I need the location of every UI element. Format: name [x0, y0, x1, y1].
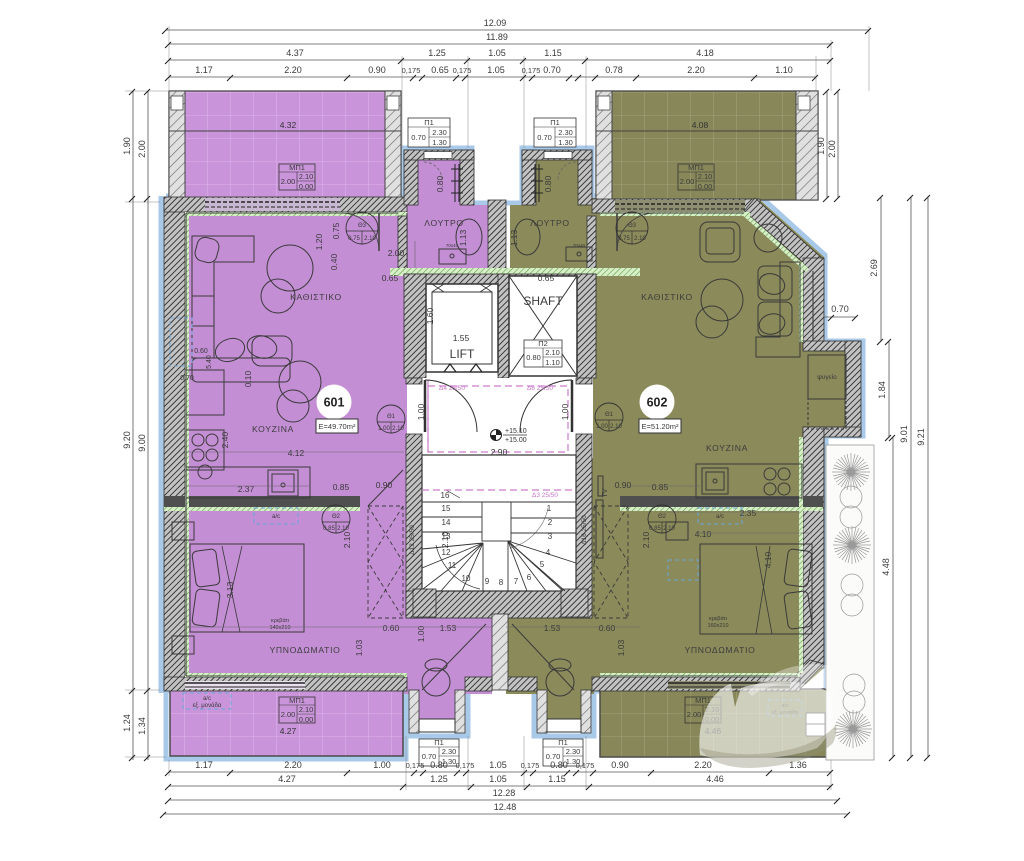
svg-text:Π1: Π1	[558, 738, 568, 747]
svg-text:0.78: 0.78	[605, 65, 623, 75]
svg-text:2.20: 2.20	[687, 65, 705, 75]
svg-text:1.20: 1.20	[314, 233, 324, 250]
svg-text:a/c: a/c	[716, 514, 724, 520]
svg-text:Θ1: Θ1	[605, 412, 614, 418]
svg-text:a/c: a/c	[272, 514, 280, 520]
svg-text:Θ2: Θ2	[658, 514, 667, 520]
svg-text:4.08: 4.08	[692, 120, 709, 130]
svg-text:1.84: 1.84	[877, 381, 887, 399]
svg-text:2.10: 2.10	[641, 531, 651, 548]
svg-text:Δ6 25/50: Δ6 25/50	[527, 385, 553, 392]
svg-text:4.37: 4.37	[286, 48, 304, 58]
svg-text:1.05: 1.05	[489, 760, 507, 770]
svg-text:2.35: 2.35	[740, 508, 757, 518]
svg-text:0.60: 0.60	[383, 623, 400, 633]
svg-text:κρεβάτι: κρεβάτι	[271, 617, 290, 624]
svg-text:601: 601	[324, 396, 345, 410]
svg-text:12.28: 12.28	[493, 788, 516, 798]
svg-text:4.10: 4.10	[695, 529, 712, 539]
svg-text:Θ3: Θ3	[628, 223, 637, 229]
svg-text:Θ3: Θ3	[358, 223, 367, 229]
svg-text:0.60: 0.60	[194, 348, 208, 355]
svg-text:14: 14	[442, 518, 451, 527]
svg-text:12.48: 12.48	[494, 802, 517, 812]
svg-text:2.10: 2.10	[364, 236, 376, 242]
svg-text:ΚΑΘΙΣΤΙΚΟ: ΚΑΘΙΣΤΙΚΟ	[641, 292, 693, 302]
svg-text:9.00: 9.00	[137, 434, 147, 452]
svg-text:0.85: 0.85	[333, 482, 350, 492]
svg-text:ΚΟΥΖΙΝΑ: ΚΟΥΖΙΝΑ	[252, 424, 294, 434]
svg-text:2.20: 2.20	[694, 760, 712, 770]
svg-text:2.90: 2.90	[491, 447, 508, 457]
svg-text:9: 9	[485, 577, 490, 586]
svg-text:3.13: 3.13	[225, 581, 235, 598]
svg-text:8: 8	[499, 578, 504, 587]
svg-text:Θ2: Θ2	[332, 514, 341, 520]
svg-text:4.27: 4.27	[278, 774, 296, 784]
svg-text:1.90: 1.90	[816, 137, 826, 155]
svg-text:0.70: 0.70	[831, 304, 849, 314]
svg-text:1.90: 1.90	[122, 137, 132, 155]
svg-text:Δ12 25/50: Δ12 25/50	[409, 525, 416, 555]
svg-text:70x40: 70x40	[573, 243, 586, 248]
svg-text:1.13: 1.13	[509, 229, 519, 246]
svg-text:1: 1	[547, 504, 552, 513]
svg-text:4.27: 4.27	[280, 726, 297, 736]
svg-text:0.65: 0.65	[538, 273, 555, 283]
svg-text:1.15: 1.15	[544, 48, 562, 58]
svg-text:2: 2	[548, 518, 553, 527]
svg-text:0.40: 0.40	[329, 253, 339, 270]
svg-text:ΥΠΝΟΔΩΜΑΤΙΟ: ΥΠΝΟΔΩΜΑΤΙΟ	[269, 645, 340, 655]
svg-text:Θ1: Θ1	[387, 414, 396, 420]
svg-text:0.70: 0.70	[543, 65, 561, 75]
svg-text:ΥΠΝΟΔΩΜΑΤΙΟ: ΥΠΝΟΔΩΜΑΤΙΟ	[684, 645, 755, 655]
svg-text:10: 10	[462, 574, 471, 583]
svg-text:4.46: 4.46	[706, 774, 724, 784]
svg-text:0.10: 0.10	[243, 370, 253, 387]
svg-text:Δ4 25/50: Δ4 25/50	[439, 385, 465, 392]
svg-text:0.80: 0.80	[543, 175, 553, 192]
svg-text:12: 12	[442, 548, 451, 557]
svg-text:Π2: Π2	[538, 339, 548, 348]
svg-text:κρεβάτι: κρεβάτι	[709, 615, 728, 622]
svg-text:2.30: 2.30	[432, 128, 447, 137]
svg-text:1.60: 1.60	[425, 307, 435, 324]
svg-text:1.30: 1.30	[432, 138, 447, 147]
svg-text:2.30: 2.30	[566, 747, 581, 756]
svg-text:0,175: 0,175	[453, 66, 472, 75]
svg-text:7: 7	[514, 577, 519, 586]
svg-text:2.10: 2.10	[545, 348, 560, 357]
svg-text:ΚΑΘΙΣΤΙΚΟ: ΚΑΘΙΣΤΙΚΟ	[290, 292, 342, 302]
svg-text:6: 6	[527, 573, 532, 582]
svg-text:140x210: 140x210	[269, 625, 290, 631]
svg-text:0.90: 0.90	[376, 480, 393, 490]
svg-text:0.80: 0.80	[430, 760, 448, 770]
svg-text:1.30: 1.30	[558, 138, 573, 147]
svg-text:1.15: 1.15	[548, 774, 566, 784]
svg-text:1.00: 1.00	[373, 760, 391, 770]
svg-text:0.70: 0.70	[537, 133, 552, 142]
svg-text:Π1: Π1	[550, 118, 560, 127]
svg-text:0.75: 0.75	[618, 236, 630, 242]
svg-text:9.21: 9.21	[916, 428, 926, 446]
svg-text:0.00: 0.00	[299, 715, 314, 724]
svg-text:0.90: 0.90	[611, 760, 629, 770]
svg-text:4.32: 4.32	[280, 120, 297, 130]
svg-text:0,175: 0,175	[521, 761, 540, 770]
svg-text:1.03: 1.03	[354, 639, 364, 656]
svg-text:1.00: 1.00	[560, 403, 570, 420]
svg-text:2.69: 2.69	[869, 259, 879, 277]
svg-text:ΜΠ1: ΜΠ1	[695, 696, 711, 705]
svg-text:ΜΠ1: ΜΠ1	[289, 696, 305, 705]
svg-text:0,175: 0,175	[576, 761, 595, 770]
svg-text:2.10: 2.10	[299, 705, 314, 714]
svg-text:1.10: 1.10	[545, 358, 560, 367]
svg-text:4.18: 4.18	[696, 48, 714, 58]
svg-text:2.00: 2.00	[827, 140, 837, 158]
svg-text:2.20: 2.20	[284, 760, 302, 770]
svg-text:0,175: 0,175	[402, 66, 421, 75]
svg-text:0.75: 0.75	[348, 236, 360, 242]
svg-text:ΜΠ1: ΜΠ1	[289, 163, 305, 172]
svg-text:2.10: 2.10	[299, 172, 314, 181]
svg-text:1.13: 1.13	[458, 229, 468, 246]
svg-text:2.10: 2.10	[440, 531, 450, 548]
svg-text:ΛΟΥΤΡΟ: ΛΟΥΤΡΟ	[424, 218, 464, 228]
svg-text:+15.00: +15.00	[505, 437, 527, 444]
svg-text:2.00: 2.00	[388, 248, 405, 258]
svg-text:1.53: 1.53	[440, 623, 457, 633]
svg-text:16: 16	[441, 491, 450, 500]
svg-text:1.17: 1.17	[195, 760, 213, 770]
svg-text:4.10: 4.10	[763, 551, 773, 568]
svg-text:2.10: 2.10	[663, 526, 675, 532]
svg-text:12.09: 12.09	[484, 18, 507, 28]
svg-text:2.40: 2.40	[220, 431, 230, 448]
svg-text:Π1: Π1	[434, 738, 444, 747]
svg-text:Δ16 25/50: Δ16 25/50	[581, 515, 588, 545]
svg-text:0.90: 0.90	[615, 480, 632, 490]
svg-text:a/c: a/c	[203, 696, 211, 702]
svg-text:1.03: 1.03	[616, 639, 626, 656]
svg-text:0.00: 0.00	[698, 182, 713, 191]
svg-text:SHAFT: SHAFT	[523, 294, 563, 308]
svg-text:1.10: 1.10	[775, 65, 793, 75]
svg-text:LIFT: LIFT	[450, 347, 475, 361]
svg-text:5.40: 5.40	[206, 355, 213, 369]
svg-text:ΜΠ1: ΜΠ1	[688, 163, 704, 172]
svg-text:70x40: 70x40	[446, 243, 459, 248]
svg-text:1.25: 1.25	[430, 774, 448, 784]
svg-text:0.65: 0.65	[431, 65, 449, 75]
svg-text:2.30: 2.30	[558, 128, 573, 137]
svg-text:602: 602	[647, 396, 668, 410]
svg-text:+15.10: +15.10	[505, 428, 527, 435]
svg-text:1.00: 1.00	[378, 426, 390, 432]
svg-text:1.00: 1.00	[596, 424, 608, 430]
svg-text:2.10: 2.10	[610, 424, 622, 430]
svg-text:1.05: 1.05	[487, 65, 505, 75]
svg-text:1.17: 1.17	[195, 65, 213, 75]
svg-text:4.48: 4.48	[881, 558, 891, 576]
svg-text:3: 3	[548, 532, 553, 541]
svg-text:εξ. μονάδα: εξ. μονάδα	[193, 702, 222, 709]
svg-text:2.10: 2.10	[698, 172, 713, 181]
svg-text:Π1: Π1	[424, 118, 434, 127]
svg-text:0,175: 0,175	[406, 761, 425, 770]
svg-text:0.85: 0.85	[649, 526, 661, 532]
svg-text:9.01: 9.01	[899, 425, 909, 443]
svg-text:1.53: 1.53	[544, 623, 561, 633]
svg-text:1.05: 1.05	[488, 48, 506, 58]
svg-text:1.25: 1.25	[428, 48, 446, 58]
svg-text:15: 15	[442, 504, 451, 513]
svg-text:0.85: 0.85	[323, 526, 335, 532]
svg-text:ΛΟΥΤΡΟ: ΛΟΥΤΡΟ	[530, 218, 570, 228]
svg-text:0.70: 0.70	[180, 375, 194, 382]
svg-text:2.00: 2.00	[281, 710, 296, 719]
svg-text:2.10: 2.10	[634, 236, 646, 242]
svg-text:1.55: 1.55	[453, 333, 470, 343]
svg-text:2.20: 2.20	[284, 65, 302, 75]
svg-text:2.00: 2.00	[687, 710, 702, 719]
svg-text:0.65: 0.65	[382, 273, 399, 283]
svg-text:4.12: 4.12	[288, 448, 305, 458]
svg-text:0.80: 0.80	[526, 353, 541, 362]
svg-text:2.30: 2.30	[442, 747, 457, 756]
svg-text:0.80: 0.80	[435, 175, 445, 192]
svg-text:11.89: 11.89	[486, 32, 508, 42]
svg-text:0,175: 0,175	[522, 66, 541, 75]
svg-text:0.70: 0.70	[411, 133, 426, 142]
svg-text:E=49.70m²: E=49.70m²	[319, 422, 356, 431]
svg-text:1.00: 1.00	[416, 403, 426, 420]
svg-text:5: 5	[540, 560, 545, 569]
svg-text:0.80: 0.80	[550, 760, 568, 770]
svg-text:1.34: 1.34	[137, 717, 147, 735]
svg-text:0,175: 0,175	[456, 761, 475, 770]
svg-text:2.37: 2.37	[238, 484, 255, 494]
svg-text:ΚΟΥΖΙΝΑ: ΚΟΥΖΙΝΑ	[706, 443, 748, 453]
svg-text:1.05: 1.05	[489, 774, 507, 784]
svg-text:2.10: 2.10	[337, 526, 349, 532]
svg-text:0.90: 0.90	[368, 65, 386, 75]
svg-text:2.10: 2.10	[342, 531, 352, 548]
svg-text:0.75: 0.75	[331, 222, 341, 239]
svg-text:ψυγείο: ψυγείο	[817, 373, 837, 381]
svg-text:11: 11	[448, 561, 457, 570]
svg-text:1.00: 1.00	[416, 625, 426, 642]
svg-text:160x210: 160x210	[707, 623, 728, 629]
svg-text:0.00: 0.00	[299, 182, 314, 191]
svg-text:2.00: 2.00	[680, 177, 695, 186]
svg-text:4: 4	[546, 548, 551, 557]
svg-text:2.10: 2.10	[392, 426, 404, 432]
svg-text:2.00: 2.00	[137, 140, 147, 158]
svg-text:0.85: 0.85	[652, 482, 669, 492]
svg-text:E=51.20m²: E=51.20m²	[642, 422, 679, 431]
svg-text:1.24: 1.24	[122, 714, 132, 732]
svg-text:Δ3 25/50: Δ3 25/50	[532, 492, 558, 499]
svg-text:2.00: 2.00	[281, 177, 296, 186]
svg-text:9.20: 9.20	[122, 431, 132, 449]
svg-text:0.60: 0.60	[599, 623, 616, 633]
